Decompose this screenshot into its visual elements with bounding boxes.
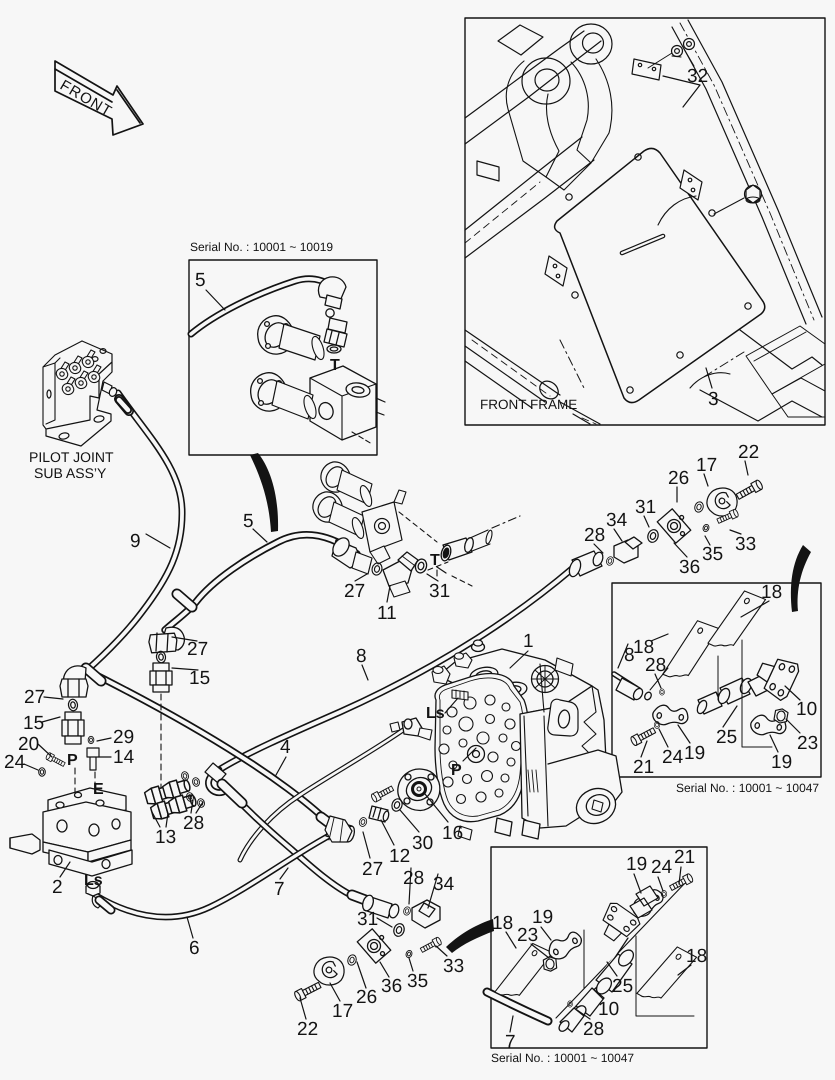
svg-text:Serial No. : 10001 ~ 10019: Serial No. : 10001 ~ 10019	[190, 240, 333, 254]
svg-text:23: 23	[517, 925, 538, 946]
svg-text:Serial No. : 10001 ~ 10047: Serial No. : 10001 ~ 10047	[491, 1051, 634, 1065]
svg-text:1: 1	[523, 631, 534, 652]
svg-text:23: 23	[797, 733, 818, 754]
svg-text:27: 27	[344, 581, 365, 602]
svg-text:34: 34	[606, 510, 628, 531]
svg-text:FRONT FRAME: FRONT FRAME	[480, 397, 577, 412]
svg-text:22: 22	[738, 442, 759, 463]
svg-text:27: 27	[24, 687, 45, 708]
svg-text:33: 33	[443, 956, 464, 977]
svg-text:22: 22	[297, 1019, 318, 1040]
svg-text:P: P	[67, 752, 78, 769]
svg-text:34: 34	[433, 874, 455, 895]
svg-text:28: 28	[645, 655, 666, 676]
svg-text:26: 26	[356, 987, 377, 1008]
svg-text:15: 15	[189, 668, 210, 689]
svg-text:2: 2	[52, 877, 63, 898]
svg-text:3: 3	[708, 389, 719, 410]
svg-text:30: 30	[412, 833, 433, 854]
svg-text:8: 8	[624, 645, 635, 666]
svg-text:35: 35	[702, 544, 723, 565]
svg-text:15: 15	[23, 713, 44, 734]
svg-text:Serial No. : 10001 ~ 10047: Serial No. : 10001 ~ 10047	[676, 781, 819, 795]
svg-text:9: 9	[130, 531, 141, 552]
svg-text:28: 28	[583, 1019, 604, 1040]
svg-text:17: 17	[332, 1001, 353, 1022]
svg-text:28: 28	[584, 525, 605, 546]
svg-text:18: 18	[492, 913, 513, 934]
svg-text:18: 18	[686, 946, 707, 967]
svg-text:25: 25	[716, 727, 737, 748]
svg-text:19: 19	[626, 854, 647, 875]
svg-text:33: 33	[735, 534, 756, 555]
svg-text:10: 10	[598, 999, 619, 1020]
svg-text:8: 8	[356, 646, 367, 667]
svg-text:27: 27	[362, 859, 383, 880]
svg-text:5: 5	[243, 511, 254, 532]
svg-text:28: 28	[403, 868, 424, 889]
svg-text:24: 24	[651, 857, 673, 878]
svg-text:T: T	[330, 357, 340, 374]
svg-text:16: 16	[442, 823, 463, 844]
svg-text:Ls: Ls	[84, 872, 103, 889]
svg-text:21: 21	[674, 847, 695, 868]
svg-text:5: 5	[195, 270, 206, 291]
svg-text:36: 36	[679, 557, 700, 578]
svg-text:27: 27	[187, 639, 208, 660]
svg-text:19: 19	[771, 752, 792, 773]
svg-text:6: 6	[189, 938, 200, 959]
svg-text:26: 26	[668, 468, 689, 489]
svg-text:24: 24	[662, 747, 684, 768]
svg-text:17: 17	[696, 455, 717, 476]
svg-text:7: 7	[505, 1032, 516, 1053]
svg-text:14: 14	[113, 747, 135, 768]
svg-text:10: 10	[796, 699, 817, 720]
svg-text:25: 25	[612, 976, 633, 997]
svg-text:28: 28	[183, 813, 204, 834]
svg-text:31: 31	[429, 581, 450, 602]
svg-text:36: 36	[381, 976, 402, 997]
svg-text:11: 11	[377, 603, 397, 624]
svg-text:18: 18	[761, 582, 782, 603]
svg-text:21: 21	[633, 757, 654, 778]
svg-text:Ls: Ls	[426, 705, 445, 722]
svg-text:7: 7	[274, 879, 285, 900]
svg-text:31: 31	[357, 909, 378, 930]
svg-text:4: 4	[280, 737, 291, 758]
svg-text:E: E	[93, 781, 104, 798]
svg-text:P: P	[451, 762, 462, 779]
svg-text:24: 24	[4, 752, 26, 773]
svg-text:31: 31	[635, 497, 656, 518]
svg-text:19: 19	[684, 743, 705, 764]
svg-text:SUB ASS’Y: SUB ASS’Y	[34, 465, 107, 481]
svg-text:13: 13	[155, 827, 176, 848]
svg-text:PILOT JOINT: PILOT JOINT	[29, 449, 114, 465]
svg-text:35: 35	[407, 971, 428, 992]
svg-text:12: 12	[389, 846, 410, 867]
svg-text:29: 29	[113, 727, 134, 748]
svg-text:T: T	[430, 552, 440, 569]
